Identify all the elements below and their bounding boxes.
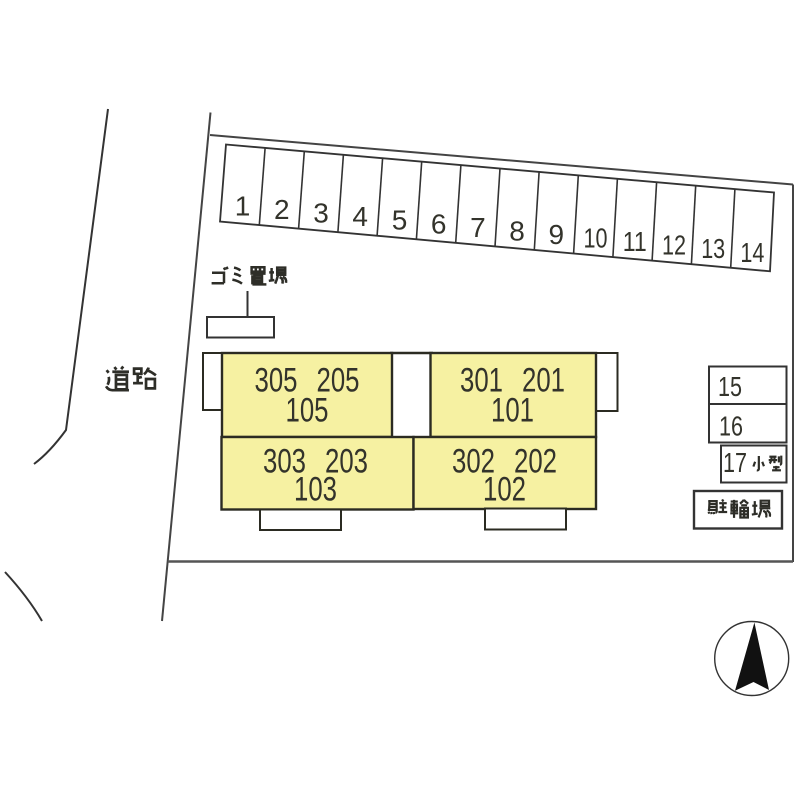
svg-text:13: 13 — [701, 233, 725, 264]
svg-text:4: 4 — [352, 201, 368, 232]
svg-text:102: 102 — [483, 471, 526, 509]
svg-text:12: 12 — [662, 230, 686, 261]
svg-text:101: 101 — [491, 392, 534, 430]
svg-text:1: 1 — [235, 191, 251, 222]
svg-text:7: 7 — [470, 212, 486, 243]
svg-text:2: 2 — [274, 194, 290, 225]
svg-text:10: 10 — [584, 223, 608, 254]
svg-text:17: 17 — [723, 447, 747, 478]
svg-text:3: 3 — [313, 198, 329, 229]
svg-text:14: 14 — [740, 237, 764, 268]
svg-text:5: 5 — [392, 205, 408, 236]
svg-text:16: 16 — [719, 411, 743, 442]
svg-text:6: 6 — [431, 208, 447, 239]
svg-text:105: 105 — [286, 392, 329, 430]
svg-text:8: 8 — [509, 215, 525, 246]
svg-text:103: 103 — [294, 471, 337, 509]
svg-text:11: 11 — [623, 226, 647, 257]
svg-text:15: 15 — [718, 371, 742, 402]
svg-text:9: 9 — [549, 219, 565, 250]
